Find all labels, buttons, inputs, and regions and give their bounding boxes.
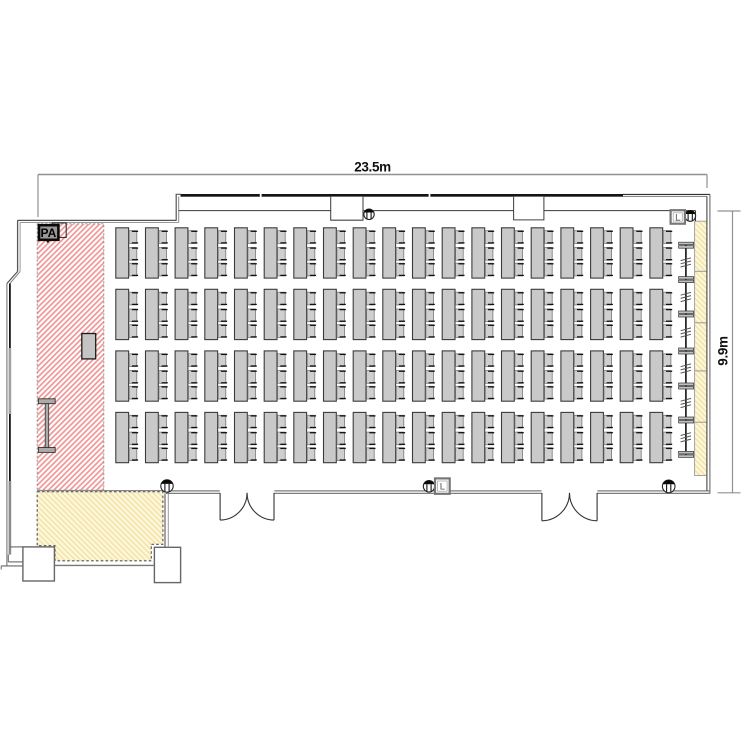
svg-text:23.5m: 23.5m (354, 159, 391, 174)
svg-text:9.9m: 9.9m (716, 336, 731, 366)
svg-text:L: L (440, 482, 445, 493)
svg-text:PA: PA (41, 226, 57, 240)
svg-text:L: L (675, 212, 680, 223)
